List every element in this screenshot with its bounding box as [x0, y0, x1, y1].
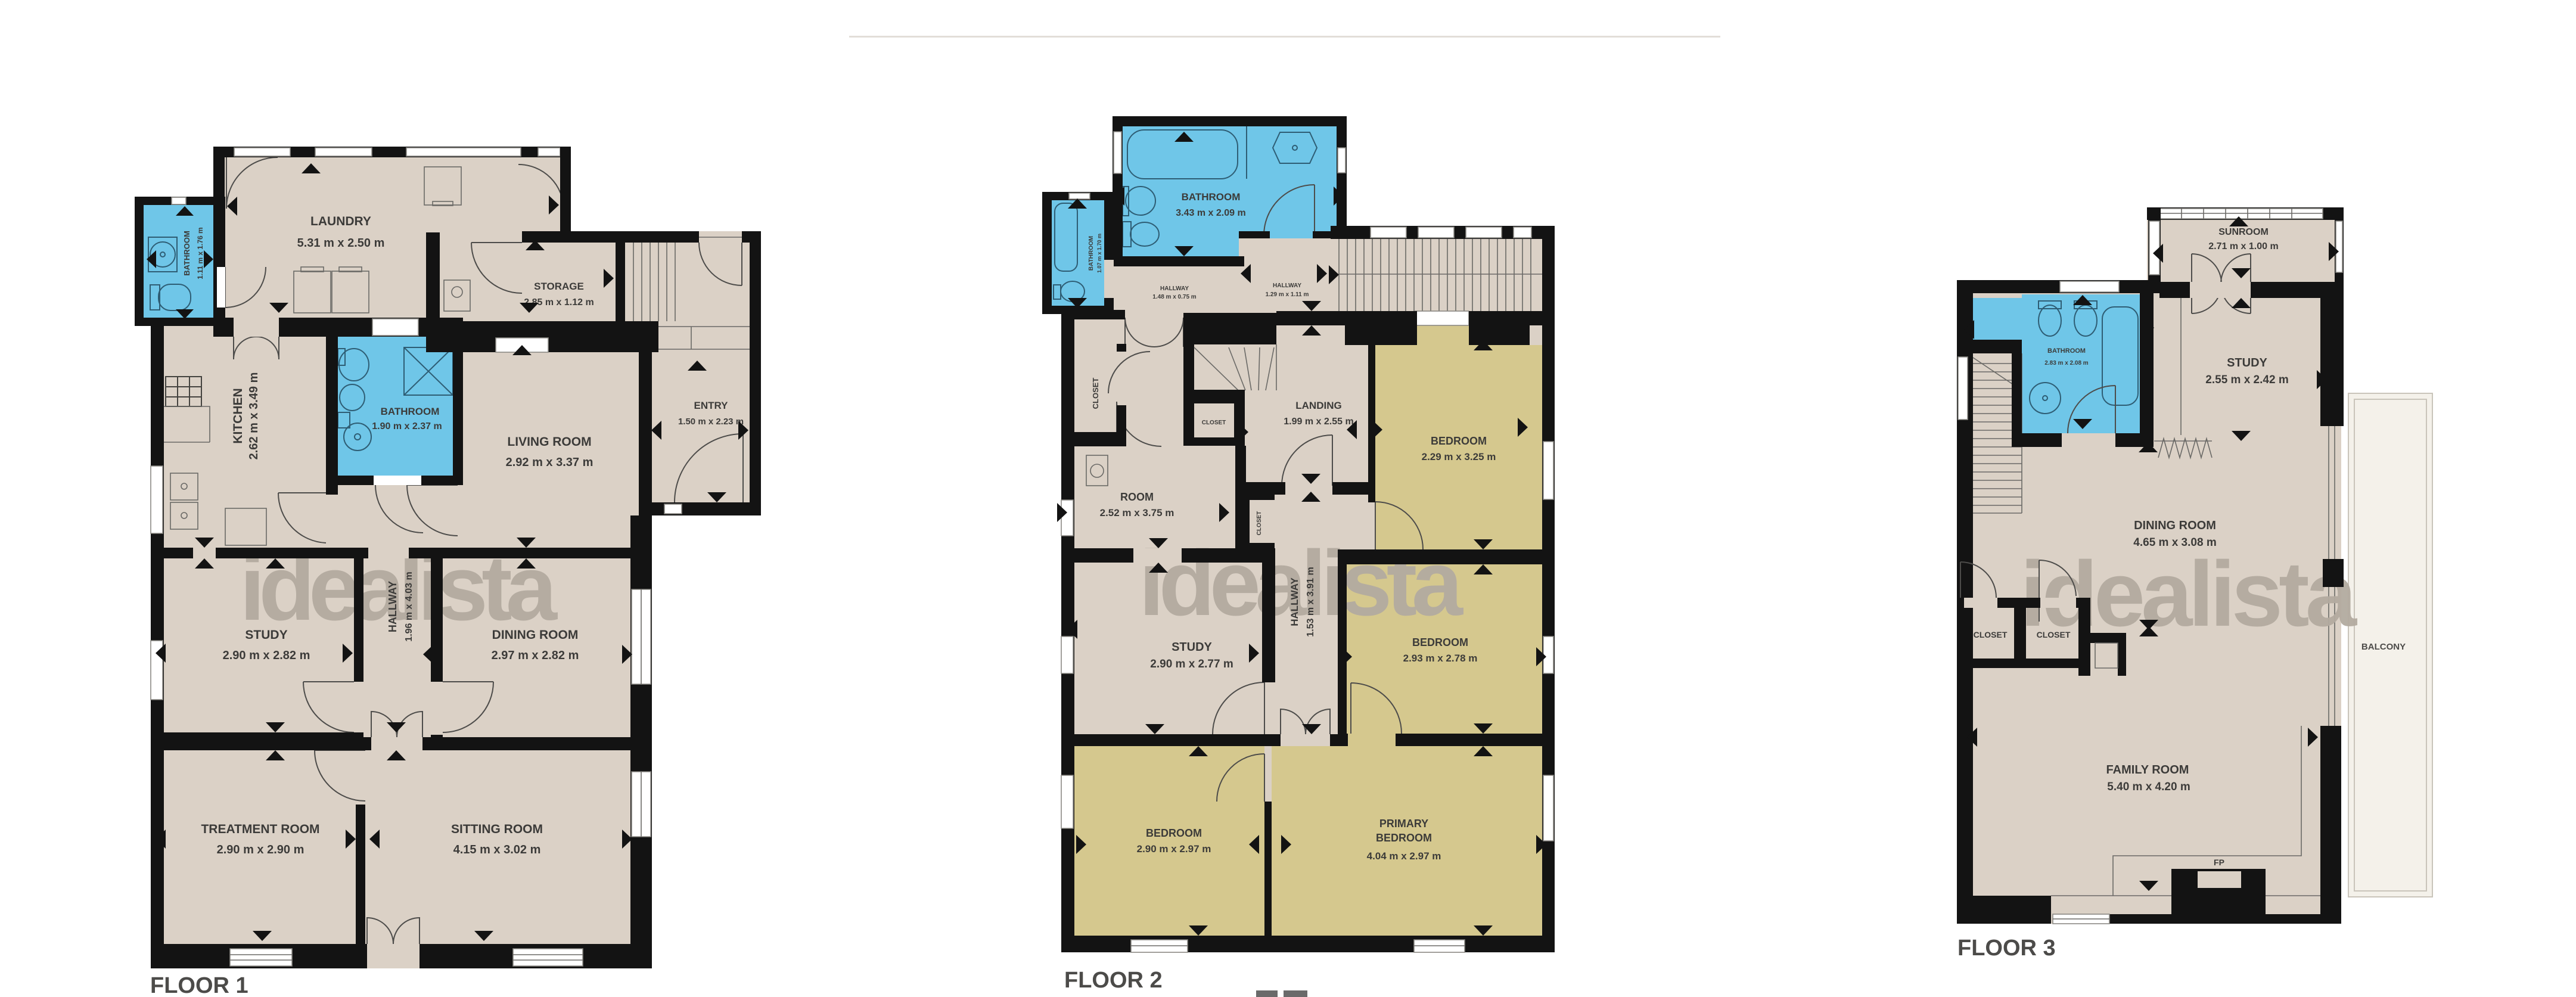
svg-text:FLOOR 2: FLOOR 2	[1064, 968, 1163, 993]
svg-text:CLOSET: CLOSET	[1202, 420, 1226, 426]
svg-text:STUDY: STUDY	[2227, 356, 2267, 369]
svg-text:BEDROOM: BEDROOM	[1146, 827, 1202, 839]
svg-text:1.11 m x 1.76 m: 1.11 m x 1.76 m	[196, 227, 204, 279]
svg-text:SITTING ROOM: SITTING ROOM	[451, 822, 543, 836]
svg-text:3.43 m x 2.09 m: 3.43 m x 2.09 m	[1176, 208, 1245, 218]
svg-text:CLOSET: CLOSET	[1091, 378, 1100, 409]
svg-text:BATHROOM: BATHROOM	[182, 231, 191, 276]
svg-text:1.50 m x 2.23 m: 1.50 m x 2.23 m	[678, 417, 744, 427]
svg-text:BEDROOM: BEDROOM	[1431, 435, 1487, 447]
svg-text:STUDY: STUDY	[1172, 641, 1212, 654]
svg-text:BATHROOM: BATHROOM	[381, 406, 440, 417]
svg-text:PRIMARY: PRIMARY	[1379, 818, 1428, 830]
svg-text:idealista: idealista	[2020, 542, 2358, 645]
svg-text:CLOSET: CLOSET	[1974, 630, 2008, 639]
svg-text:BATHROOM: BATHROOM	[1088, 236, 1095, 271]
svg-text:2.83 m x 2.08 m: 2.83 m x 2.08 m	[2044, 360, 2088, 367]
svg-text:BATHROOM: BATHROOM	[2047, 347, 2086, 355]
svg-text:LANDING: LANDING	[1295, 400, 1341, 411]
svg-text:KITCHEN: KITCHEN	[231, 388, 245, 443]
svg-text:2.92 m x 3.37 m: 2.92 m x 3.37 m	[506, 456, 593, 469]
svg-text:1.99 m x 2.55 m: 1.99 m x 2.55 m	[1284, 417, 1353, 427]
svg-text:TREATMENT ROOM: TREATMENT ROOM	[201, 822, 319, 836]
svg-text:DINING ROOM: DINING ROOM	[492, 628, 579, 642]
svg-text:1.96 m x 4.03 m: 1.96 m x 4.03 m	[404, 572, 414, 641]
svg-text:BALCONY: BALCONY	[2361, 642, 2406, 652]
svg-text:FP: FP	[2214, 858, 2224, 867]
svg-text:1.07 m x 1.70 m: 1.07 m x 1.70 m	[1096, 234, 1102, 273]
svg-text:FLOOR 1: FLOOR 1	[150, 973, 248, 997]
svg-text:1.90 m x 2.37 m: 1.90 m x 2.37 m	[372, 421, 442, 431]
svg-text:2.90 m x 2.77 m: 2.90 m x 2.77 m	[1150, 658, 1233, 670]
svg-text:STORAGE: STORAGE	[534, 281, 584, 292]
svg-text:LIVING ROOM: LIVING ROOM	[507, 435, 591, 449]
svg-text:CLOSET: CLOSET	[1256, 511, 1263, 536]
svg-text:5.40 m x 4.20 m: 5.40 m x 4.20 m	[2107, 781, 2190, 793]
svg-text:ENTRY: ENTRY	[694, 400, 729, 411]
svg-text:4.15 m x 3.02 m: 4.15 m x 3.02 m	[453, 843, 541, 856]
svg-text:1.53 m x 3.91 m: 1.53 m x 3.91 m	[1306, 567, 1316, 636]
svg-text:2.71 m x 1.00 m: 2.71 m x 1.00 m	[2208, 241, 2278, 251]
svg-text:STUDY: STUDY	[245, 628, 287, 642]
svg-text:LAUNDRY: LAUNDRY	[310, 215, 371, 228]
svg-text:2.90 m x 2.97 m: 2.90 m x 2.97 m	[1137, 843, 1211, 855]
svg-text:2.90 m x 2.82 m: 2.90 m x 2.82 m	[223, 649, 310, 662]
svg-text:HALLWAY: HALLWAY	[1160, 285, 1189, 292]
svg-text:SUNROOM: SUNROOM	[2218, 227, 2269, 237]
svg-text:4.04 m x 2.97 m: 4.04 m x 2.97 m	[1367, 850, 1441, 862]
svg-text:DINING ROOM: DINING ROOM	[2134, 519, 2216, 532]
svg-text:4.65 m x 3.08 m: 4.65 m x 3.08 m	[2133, 536, 2216, 549]
svg-text:2.93 m x 2.78 m: 2.93 m x 2.78 m	[1403, 653, 1478, 664]
svg-text:2.62 m x 3.49 m: 2.62 m x 3.49 m	[247, 372, 260, 460]
svg-text:HALLWAY: HALLWAY	[1273, 282, 1301, 289]
svg-text:CLOSET: CLOSET	[2037, 630, 2071, 639]
svg-text:BATHROOM: BATHROOM	[1182, 191, 1241, 203]
svg-text:HALLWAY: HALLWAY	[387, 581, 399, 632]
svg-text:2.97 m x 2.82 m: 2.97 m x 2.82 m	[492, 649, 579, 662]
svg-text:HALLWAY: HALLWAY	[1289, 577, 1300, 626]
svg-text:2.55 m x 2.42 m: 2.55 m x 2.42 m	[2205, 374, 2288, 386]
svg-text:BEDROOM: BEDROOM	[1412, 636, 1468, 648]
svg-text:BEDROOM: BEDROOM	[1376, 832, 1432, 844]
svg-text:2.90 m x 2.90 m: 2.90 m x 2.90 m	[217, 843, 304, 856]
svg-text:idealista: idealista	[1139, 532, 1464, 635]
svg-text:ROOM: ROOM	[1120, 491, 1154, 503]
svg-text:FAMILY ROOM: FAMILY ROOM	[2106, 763, 2189, 777]
svg-text:2.52 m x 3.75 m: 2.52 m x 3.75 m	[1100, 507, 1174, 518]
svg-text:FLOOR 3: FLOOR 3	[1957, 936, 2056, 961]
svg-text:1.29 m x 1.11 m: 1.29 m x 1.11 m	[1266, 291, 1309, 298]
svg-text:5.31 m x 2.50 m: 5.31 m x 2.50 m	[297, 237, 385, 250]
svg-text:2.29 m x 3.25 m: 2.29 m x 3.25 m	[1422, 451, 1496, 462]
svg-text:1.48 m x 0.75 m: 1.48 m x 0.75 m	[1152, 294, 1196, 300]
